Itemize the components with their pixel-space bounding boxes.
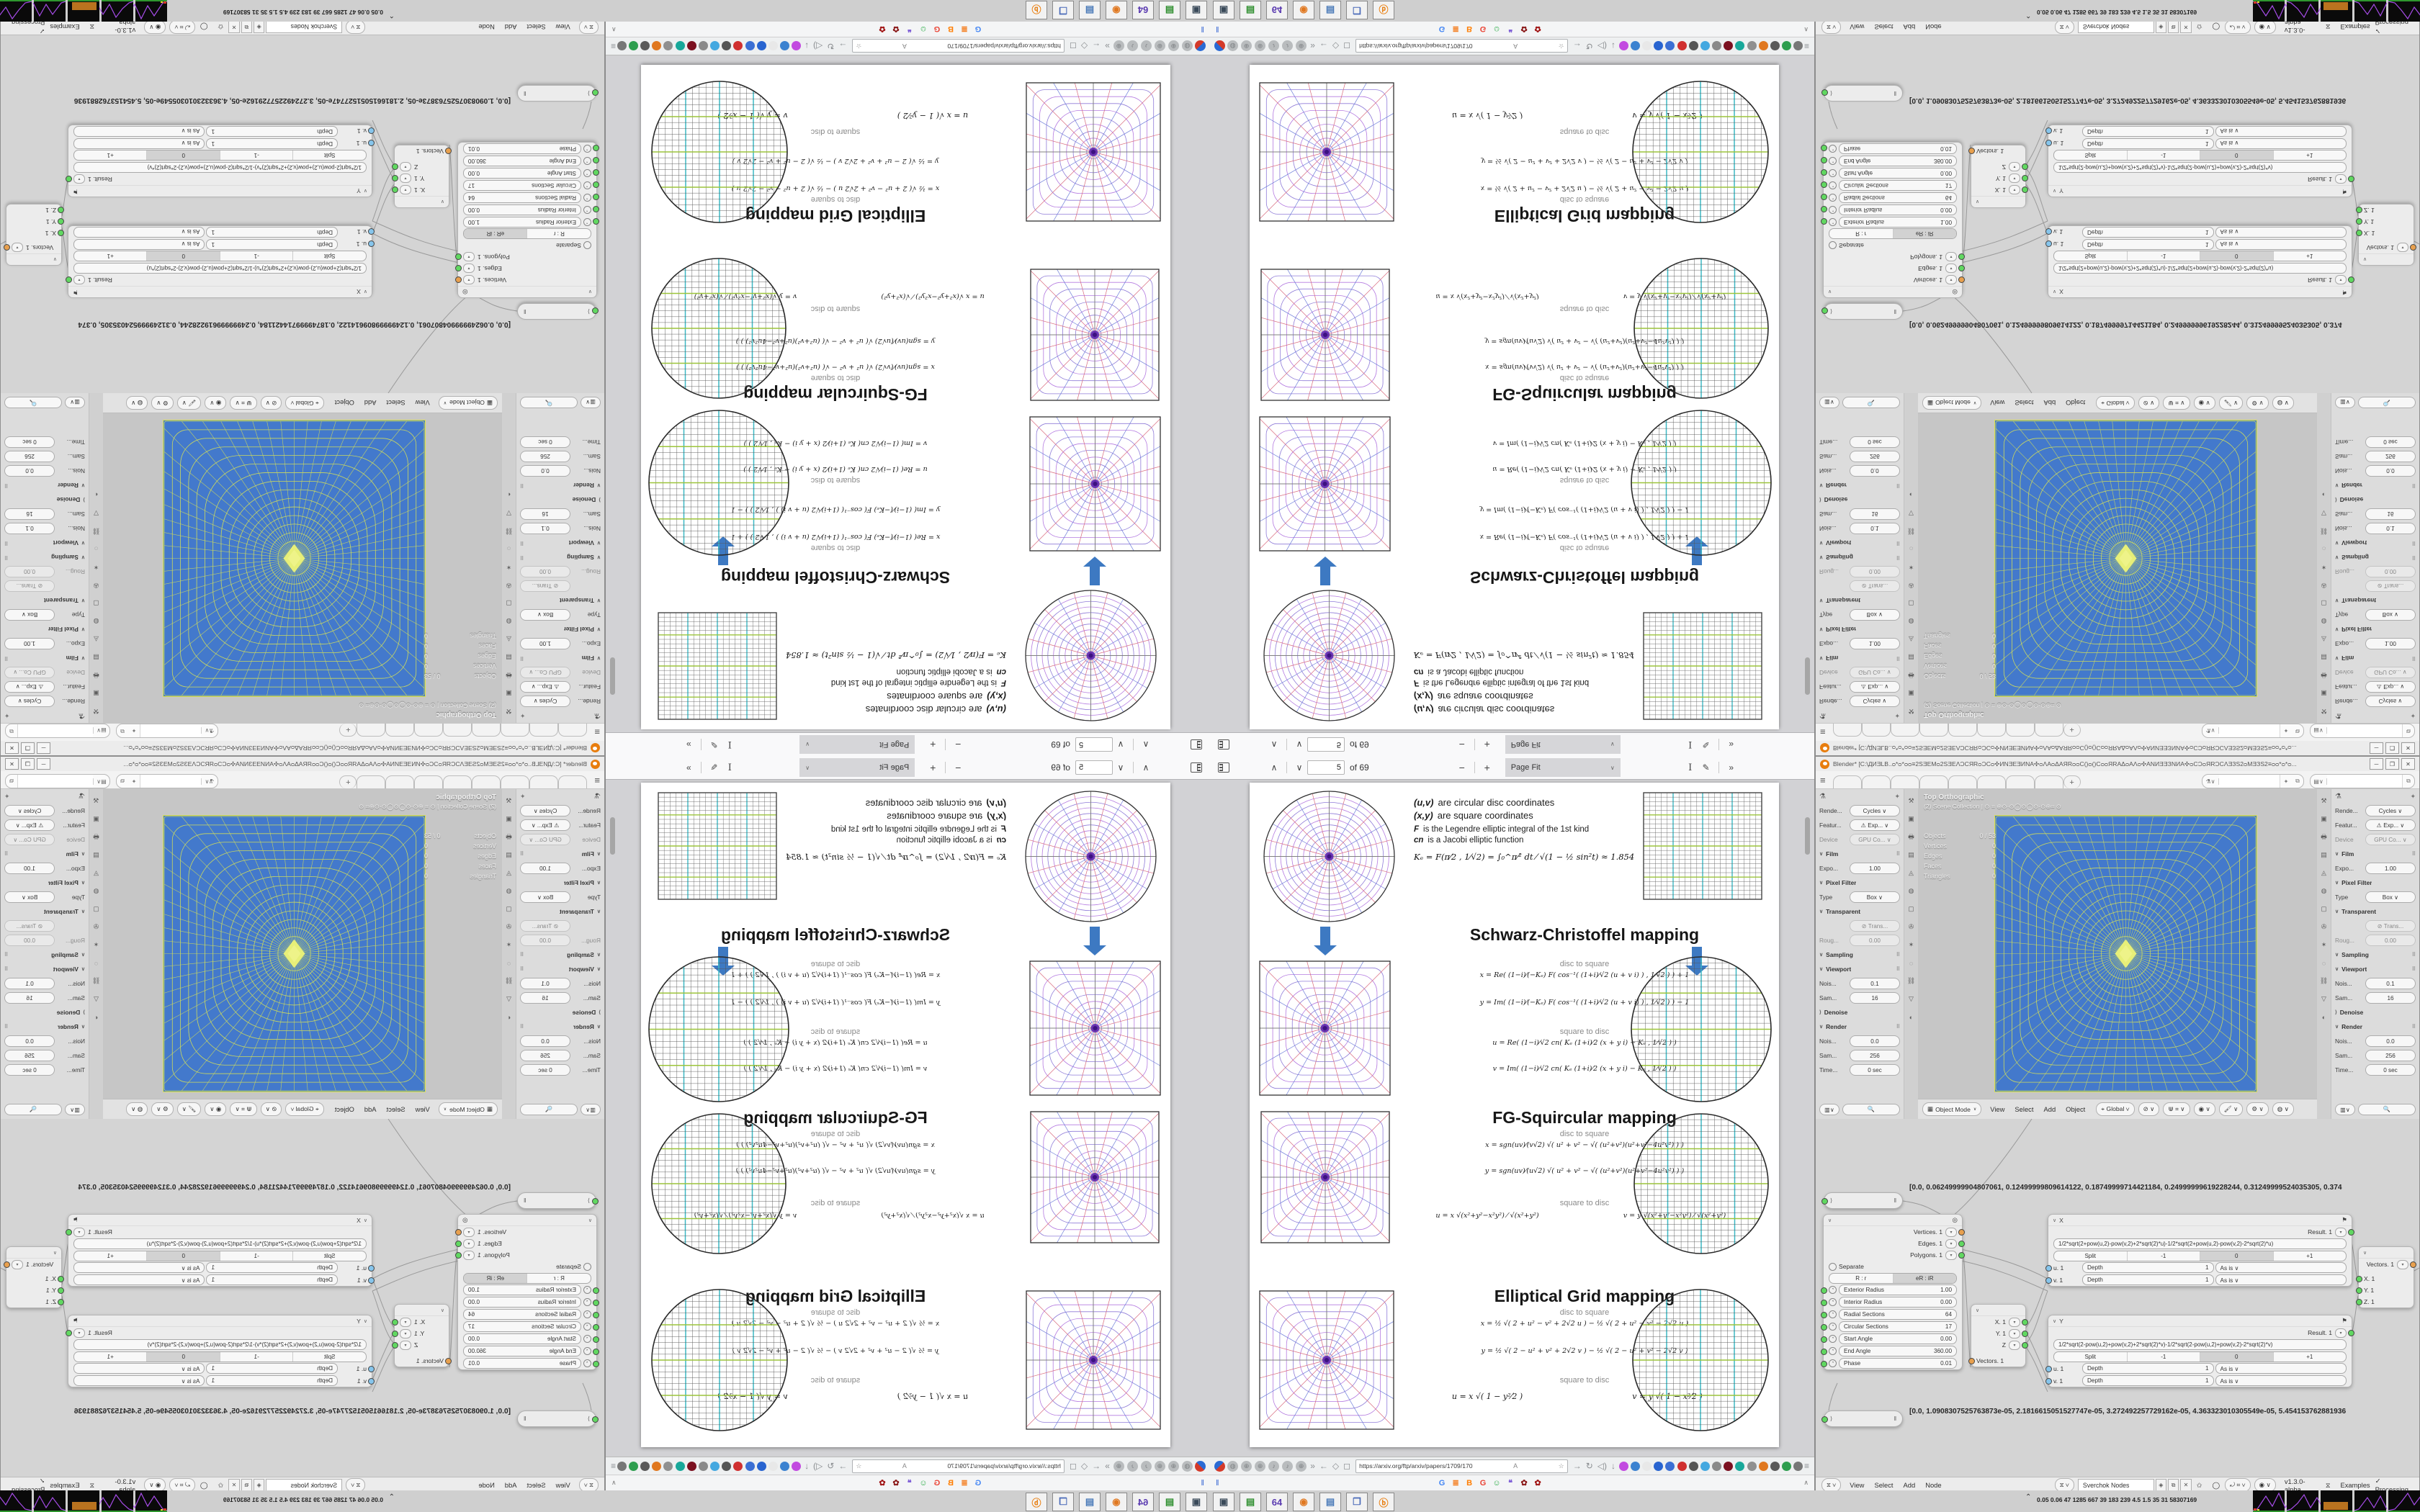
close-button[interactable]: ✕ — [2401, 742, 2415, 754]
properties-tab-icon[interactable]: ◍ — [2318, 612, 2331, 630]
desktop-icon[interactable]: ❒ — [1052, 1, 1074, 19]
property-row[interactable]: Expo... 1.00 — [1, 636, 89, 651]
node-input-row[interactable]: u. 1 Depth1 As is ∨ — [2048, 138, 2352, 150]
property-row[interactable]: Time... 0 sec — [516, 1063, 604, 1077]
node-input-row[interactable]: Y. 1 — [6, 1284, 61, 1296]
node-output-row[interactable]: Z▾ — [1971, 161, 2025, 173]
unlink-icon[interactable]: ✕ — [2180, 21, 2191, 34]
properties-tab-icon[interactable]: ◬ — [2318, 630, 2331, 648]
node-output-row[interactable]: Result. 1▾ — [68, 1327, 372, 1338]
mode-selector[interactable]: ▦Object Mode∨ — [1922, 1102, 1981, 1116]
workspace-tab[interactable] — [1833, 724, 1862, 737]
extension-icon[interactable] — [640, 1462, 650, 1471]
property-value[interactable]: Cycles ∨ — [520, 805, 570, 816]
sidebar-toggle-button[interactable] — [1216, 737, 1232, 752]
properties-tab-icon[interactable]: ▽ — [2318, 504, 2331, 522]
property-value[interactable]: 1.00 — [1850, 638, 1900, 649]
properties-tab-icon[interactable]: ⛓ — [90, 522, 103, 540]
property-row[interactable]: Featur... ⚠ Exp... ∨ — [1816, 818, 1904, 832]
property-row[interactable]: Nois... 0.1 — [516, 521, 604, 536]
viewport-header-pill[interactable]: ⊘ ∨ — [2138, 396, 2160, 410]
url-bar[interactable]: https://arxiv.org/ftp/arxiv/papers/1709/… — [1355, 40, 1568, 53]
desktop-icon[interactable]: 64 — [1132, 1493, 1154, 1511]
node-output-row[interactable]: Vertices. 1▾ — [458, 1226, 596, 1238]
menu-select[interactable]: Select — [1874, 23, 1893, 31]
tab-favicon[interactable]: ⊕ — [1296, 1461, 1307, 1472]
property-value[interactable]: GPU Co... ∨ — [520, 834, 570, 845]
menu-view[interactable]: View — [556, 1481, 570, 1489]
extension-icon[interactable] — [1770, 42, 1780, 51]
bookmark-star-icon[interactable]: ☆ — [1559, 1462, 1564, 1470]
property-row[interactable]: Film — [2331, 651, 2419, 665]
properties-tab-icon[interactable]: ◬ — [90, 630, 103, 648]
property-row[interactable]: Expo... 1.00 — [1, 861, 89, 876]
property-value[interactable]: 0 sec — [4, 1064, 55, 1076]
node-input-row[interactable]: u. 1 Depth1 As is ∨ — [68, 138, 372, 150]
zoom-out-button[interactable]: − — [950, 760, 966, 775]
property-row[interactable]: Nois... 0.0 — [516, 464, 604, 478]
sidebar-toggle-button[interactable] — [1216, 760, 1232, 775]
node-input-row[interactable]: u. 1 Depth1 As is ∨ — [68, 238, 372, 251]
workspace-tab[interactable] — [357, 724, 385, 737]
node-param-row[interactable]: ◔ Interior Radius0.00 — [1824, 1296, 1962, 1308]
property-row[interactable]: Sampling — [2331, 948, 2419, 962]
property-row[interactable]: Transparent — [1, 904, 89, 919]
reader-icon[interactable]: A — [1513, 1462, 1518, 1470]
pdf-document-area[interactable]: (u,v)are circular disc coordinates (x,y)… — [606, 780, 1210, 1457]
menu-node[interactable]: Node — [478, 1481, 494, 1489]
reload-icon[interactable]: ↻ — [1586, 41, 1593, 51]
property-row[interactable]: Pixel Filter — [1, 876, 89, 890]
bookmark-favicon[interactable]: ✿ — [891, 24, 901, 35]
property-value[interactable]: Cycles ∨ — [1850, 805, 1900, 816]
node-output-row[interactable]: Vertices. 1▾ — [1824, 1226, 1962, 1238]
node-param-row[interactable]: ◔ Start Angle0.00 — [458, 1333, 596, 1345]
node-param-row[interactable]: ◔ Phase0.01 — [1824, 1357, 1962, 1369]
node-param-row[interactable]: ◔ Radial Sections64 — [458, 192, 596, 204]
back-icon[interactable]: ← — [1319, 1461, 1328, 1471]
properties-tab-icon[interactable]: ▣ — [1905, 810, 1918, 828]
property-row[interactable]: Sam... 16 — [2331, 991, 2419, 1005]
workspace-tab[interactable] — [1891, 724, 1919, 737]
minimize-button[interactable]: ─ — [2370, 742, 2383, 754]
view-layer-selector[interactable]: ▤∨ ⧉ — [2310, 724, 2415, 738]
property-value[interactable]: 1.00 — [2365, 863, 2416, 874]
menu-select[interactable]: Select — [527, 1481, 546, 1489]
zoom-out-button[interactable]: − — [1454, 737, 1470, 752]
properties-tab-icon[interactable]: ▣ — [503, 684, 516, 702]
extension-icon[interactable] — [745, 42, 755, 51]
search-field[interactable]: 🔍 — [1842, 1104, 1900, 1115]
orientation-selector[interactable]: ⌖ Global ∨ — [2096, 396, 2134, 410]
viewport-header-pill[interactable]: ⋓ ⌗ ∨ — [2163, 1102, 2190, 1116]
properties-tab-icon[interactable]: 🖶 — [2318, 666, 2331, 684]
overlay-toggle[interactable]: ◉ ∨ — [144, 20, 166, 34]
properties-tab-icon[interactable]: ▣ — [503, 810, 516, 828]
pdf-document-area[interactable]: (u,v)are circular disc coordinates (x,y)… — [1210, 780, 1814, 1457]
scene-selector[interactable]: ⚗∨ ✦ ⧉ — [116, 724, 218, 738]
maximize-button[interactable]: ❐ — [21, 758, 35, 770]
properties-tab-icon[interactable]: ⚒ — [2318, 792, 2331, 810]
property-value[interactable]: 0.0 — [520, 465, 570, 477]
extension-icon[interactable] — [1747, 42, 1757, 51]
property-value[interactable]: 0.1 — [2365, 523, 2416, 534]
viewport-header-pill[interactable]: ◍ ∨ — [126, 1102, 148, 1116]
property-row[interactable]: Film — [1, 847, 89, 861]
editor-type-button[interactable]: ▥∨ — [2335, 397, 2355, 408]
search-field[interactable]: 🔍 — [2358, 397, 2416, 408]
node-output-row[interactable]: Polygons. 1▾ — [1824, 251, 1962, 263]
property-row[interactable]: Sam... 256 — [1, 449, 89, 464]
node-output-row[interactable]: Vertices. 1▾ — [458, 274, 596, 286]
extension-icon[interactable] — [745, 1462, 755, 1471]
view-layer-name-field[interactable] — [2327, 724, 2403, 737]
node-param-row[interactable]: ◔ Start Angle0.00 — [1824, 1333, 1962, 1345]
properties-tab-icon[interactable]: ▣ — [90, 684, 103, 702]
properties-tab-icon[interactable]: ▣ — [1905, 684, 1918, 702]
bookmark-favicon[interactable]: ≣ — [1451, 24, 1461, 35]
shield-icon[interactable]: ◇ — [1081, 41, 1088, 51]
property-value[interactable]: 0.0 — [1850, 465, 1900, 477]
tree-type-icon[interactable]: ⧖ ∨ — [2055, 20, 2074, 34]
property-value[interactable]: Cycles ∨ — [4, 696, 55, 707]
properties-tab-icon[interactable]: ✶ — [503, 936, 516, 954]
node-formula-x[interactable]: ∨X⚑ Result. 1▾ 1/2*sqrt(2+pow(u,2)-pow(v… — [68, 1214, 372, 1287]
tab-favicon[interactable]: ◍ — [1227, 41, 1238, 52]
properties-tab-icon[interactable]: 🖶 — [90, 666, 103, 684]
node-input-row[interactable]: u. 1 Depth1 As is ∨ — [2048, 1261, 2352, 1274]
workspace-tab[interactable] — [2035, 775, 2063, 788]
search-field[interactable]: 🔍 — [520, 1104, 578, 1115]
extension-icon[interactable] — [1619, 42, 1628, 51]
properties-tab-icon[interactable]: ◍ — [1905, 882, 1918, 900]
property-row[interactable]: Sam... 16 — [2331, 507, 2419, 521]
menu-object[interactable]: Object — [335, 399, 354, 407]
property-row[interactable] — [516, 789, 604, 804]
property-value[interactable]: 256 — [2365, 1050, 2416, 1061]
search-field[interactable]: 🔍 — [1842, 397, 1900, 408]
properties-tab-icon[interactable]: ✇ — [1905, 918, 1918, 936]
hamburger-menu-icon[interactable]: ≡ — [1820, 775, 1826, 786]
property-value[interactable]: 0.1 — [4, 523, 55, 534]
back-icon[interactable]: ← — [1092, 1461, 1101, 1471]
property-row[interactable]: Sam... 256 — [1, 1048, 89, 1063]
copy-icon[interactable]: ⧉ — [2292, 778, 2303, 785]
node-output-row[interactable]: Z▾ — [395, 1339, 449, 1351]
property-row[interactable]: ⊘ Trans... — [2331, 579, 2419, 593]
property-row[interactable]: Rende... Cycles ∨ — [1816, 694, 1904, 708]
menu-select[interactable]: Select — [2015, 1105, 2033, 1113]
property-row[interactable]: Film — [516, 651, 604, 665]
node-param-row[interactable]: ◔ Circular Sections17 — [458, 179, 596, 192]
menu-select[interactable]: Select — [1874, 1481, 1893, 1489]
property-row[interactable]: Viewport — [516, 962, 604, 976]
extension-icon[interactable] — [640, 42, 650, 51]
draw-tool[interactable]: ✎ — [1698, 760, 1714, 775]
page-number-input[interactable] — [1075, 760, 1113, 775]
extension-icon[interactable] — [1793, 42, 1803, 51]
blender-title-bar[interactable]: Blender* [C:\ДИƎLB..ᴑ*ᴑ*ᴑᴑ≡2SƎEMᴑ2SƎEΛƆC… — [1816, 757, 2419, 771]
fake-user-shield-icon[interactable]: ◈ — [254, 1479, 264, 1492]
property-row[interactable]: Denoise — [1816, 1005, 1904, 1020]
menu-node[interactable]: Node — [1925, 23, 1941, 31]
property-row[interactable]: Roug... 0.00 — [1, 564, 89, 579]
property-row[interactable]: Type Box ∨ — [2331, 890, 2419, 904]
forward-icon[interactable]: → — [838, 1461, 847, 1471]
editor-type-button[interactable]: ▥∨ — [65, 1104, 85, 1115]
node-output-row[interactable]: Result. 1▾ — [68, 174, 372, 185]
wrap-buttons[interactable]: Split-10+1 — [2048, 150, 2352, 161]
property-row[interactable]: ⊘ Trans... — [1816, 919, 1904, 933]
copy-icon[interactable]: ⧉ — [2403, 778, 2414, 785]
property-row[interactable]: Featur... ⚠ Exp... ∨ — [1, 818, 89, 832]
zoom-in-button[interactable]: + — [925, 737, 941, 752]
menu-add[interactable]: Add — [364, 399, 377, 407]
next-page-button[interactable]: ∨ — [1291, 760, 1307, 775]
properties-tab-icon[interactable]: ▤ — [90, 648, 103, 666]
formula-field[interactable]: 1/2*sqrt(2+pow(u,2)-pow(v,2)+2*sqrt(2)*u… — [2048, 1238, 2352, 1250]
next-page-button[interactable]: ∨ — [1113, 760, 1129, 775]
property-value[interactable]: 0.00 — [520, 566, 570, 577]
properties-tab-icon[interactable]: ▤ — [90, 846, 103, 864]
bookmark-favicon[interactable]: ✿ — [877, 1478, 887, 1488]
properties-tab-icon[interactable]: ◬ — [90, 864, 103, 882]
property-value[interactable]: 0.0 — [1850, 1035, 1900, 1047]
property-row[interactable]: Viewport — [1816, 962, 1904, 976]
overflow-icon[interactable]: » — [1105, 41, 1110, 51]
node-tree-name[interactable]: Sverchok Nodes — [2078, 21, 2154, 34]
menu-add[interactable]: Add — [2043, 1105, 2056, 1113]
extension-icon[interactable] — [687, 1462, 696, 1471]
scrollbar-thumb[interactable] — [610, 817, 615, 855]
blender-title-bar[interactable]: Blender* [C:\ДИƎLB..ᴑ*ᴑ*ᴑᴑ≡2SƎEMᴑ2SƎEΛƆC… — [1, 757, 604, 771]
property-row[interactable]: Render — [1, 1020, 89, 1034]
property-value[interactable]: 0.0 — [520, 1035, 570, 1047]
draw-tool[interactable]: ✎ — [706, 760, 722, 775]
editor-type-button[interactable]: ▥∨ — [581, 1104, 601, 1115]
view-layer-selector[interactable]: ▤∨ ⧉ — [5, 724, 110, 738]
download-icon[interactable]: ↓ — [805, 1461, 809, 1471]
property-row[interactable]: Expo... 1.00 — [516, 636, 604, 651]
node-param-row[interactable]: ◔ Circular Sections17 — [458, 1320, 596, 1333]
property-value[interactable]: ⚠ Exp... ∨ — [4, 681, 55, 693]
node-input-row[interactable]: Vectors. 1 — [395, 1355, 449, 1367]
next-page-button[interactable]: ∨ — [1113, 737, 1129, 752]
monitor-expand-icon[interactable]: ⌃ — [2025, 1493, 2031, 1501]
wrap-buttons[interactable]: Split-10+1 — [68, 150, 372, 161]
add-workspace-button[interactable]: + — [339, 775, 357, 788]
workspace-tab[interactable] — [1919, 775, 1948, 788]
copy-icon[interactable]: ⧉ — [2292, 727, 2303, 734]
extension-icon[interactable] — [792, 42, 801, 51]
desktop-icon[interactable]: ⓑ — [1026, 1493, 1047, 1511]
menu-view[interactable]: View — [1850, 23, 1864, 31]
properties-tab-icon[interactable]: ◐ — [2318, 1008, 2331, 1026]
properties-tab-icon[interactable]: ▢ — [90, 900, 103, 918]
menu-view[interactable]: View — [1850, 1481, 1864, 1489]
property-value[interactable]: GPU Co... ∨ — [4, 667, 55, 678]
properties-tab-icon[interactable]: ◍ — [2318, 882, 2331, 900]
tab-favicon[interactable]: ◍ — [1227, 1461, 1238, 1472]
mode-selector[interactable]: ▦Object Mode∨ — [439, 396, 498, 410]
menu-view[interactable]: View — [556, 23, 570, 31]
property-row[interactable]: Rende... Cycles ∨ — [516, 694, 604, 708]
property-value[interactable]: 0 sec — [2365, 1064, 2416, 1076]
node-param-row[interactable]: ◔ Phase0.01 — [458, 143, 596, 155]
properties-tab-icon[interactable]: ◐ — [1905, 1008, 1918, 1026]
properties-tab-icon[interactable]: ◌ — [503, 540, 516, 558]
more-tools-button[interactable]: » — [1724, 737, 1739, 752]
properties-tab-icon[interactable]: ◌ — [90, 954, 103, 972]
properties-tab-icon[interactable]: ▽ — [90, 504, 103, 522]
reader-icon[interactable]: A — [1513, 42, 1518, 50]
zoom-out-button[interactable]: − — [1454, 760, 1470, 775]
properties-tab-icon[interactable]: ◌ — [90, 540, 103, 558]
bookmark-favicon[interactable]: ☺ — [918, 24, 928, 35]
node-tree-name[interactable]: Sverchok Nodes — [266, 1479, 342, 1492]
bookmark-favicon[interactable]: ✿ — [1519, 1478, 1529, 1488]
node-param-row[interactable]: ◔ Exterior Radius1.00 — [458, 1284, 596, 1296]
forward-icon[interactable]: → — [1573, 41, 1582, 51]
extension-icon[interactable] — [1619, 1462, 1628, 1471]
node-ring[interactable]: ∨◎ Vertices. 1▾Edges. 1▾Polygons. 1▾ Sep… — [457, 142, 597, 298]
mode-selector[interactable]: ▦Object Mode∨ — [439, 1102, 498, 1116]
node-input-row[interactable]: Z. 1 — [2359, 1296, 2414, 1308]
workspace-tab[interactable] — [385, 724, 414, 737]
properties-tab-icon[interactable]: ▢ — [1905, 594, 1918, 612]
editor-type-button[interactable]: ▥∨ — [1819, 397, 1839, 408]
close-button[interactable]: ✕ — [5, 742, 19, 754]
extension-icon[interactable] — [617, 42, 627, 51]
property-row[interactable]: Device GPU Co... ∨ — [1816, 665, 1904, 680]
extension-icon[interactable] — [722, 1462, 731, 1471]
menu-view[interactable]: View — [416, 1105, 430, 1113]
property-value[interactable]: 16 — [1850, 992, 1900, 1004]
tab-favicon[interactable]: ♪ — [1141, 1461, 1152, 1472]
property-value[interactable]: 0 sec — [520, 436, 570, 448]
tab-favicon[interactable]: ♪ — [1127, 1461, 1138, 1472]
browser-logo-icon[interactable] — [1195, 1461, 1206, 1472]
property-value[interactable]: 256 — [4, 1050, 55, 1061]
sound-icon[interactable]: ◁) — [813, 1461, 823, 1471]
property-row[interactable]: Roug... 0.00 — [516, 564, 604, 579]
tab-favicon[interactable]: ♪ — [1268, 1461, 1279, 1472]
separate-toggle[interactable]: Separate — [1824, 240, 1962, 251]
property-value[interactable]: 16 — [2365, 992, 2416, 1004]
property-value[interactable]: 0 sec — [520, 1064, 570, 1076]
property-row[interactable]: Rende... Cycles ∨ — [2331, 694, 2419, 708]
extension-icon[interactable] — [652, 1462, 661, 1471]
property-row[interactable]: Denoise — [1, 1005, 89, 1020]
shield-icon[interactable]: ◇ — [1332, 1461, 1339, 1471]
property-value[interactable]: 0.0 — [2365, 465, 2416, 477]
property-value[interactable]: 0.00 — [2365, 566, 2416, 577]
page-number-input[interactable] — [1307, 737, 1345, 752]
property-row[interactable]: Nois... 0.0 — [2331, 464, 2419, 478]
minimize-button[interactable]: ─ — [2370, 758, 2383, 770]
property-row[interactable]: Expo... 1.00 — [516, 861, 604, 876]
node-param-row[interactable]: ◔ End Angle360.00 — [458, 155, 596, 167]
properties-tab-icon[interactable]: 🖶 — [2318, 828, 2331, 846]
property-row[interactable]: Sam... 256 — [1816, 449, 1904, 464]
separate-toggle[interactable]: Separate — [458, 240, 596, 251]
viewport-header-pill[interactable]: ⚙ ∨ — [2246, 396, 2268, 410]
sound-icon[interactable]: ◁) — [1597, 1461, 1607, 1471]
properties-tab-icon[interactable]: ▢ — [503, 594, 516, 612]
properties-tab-icon[interactable]: ✇ — [90, 918, 103, 936]
wrap-buttons[interactable]: Split-10+1 — [68, 1351, 372, 1362]
property-row[interactable]: Device GPU Co... ∨ — [1, 832, 89, 847]
property-row[interactable]: Render — [516, 1020, 604, 1034]
search-field[interactable]: 🔍 — [520, 397, 578, 408]
node-input-row[interactable]: v. 1 Depth1 As is ∨ — [68, 226, 372, 238]
property-value[interactable]: Box ∨ — [4, 609, 55, 621]
property-value[interactable]: ⊘ Trans... — [1850, 580, 1900, 592]
menu-node[interactable]: Node — [1925, 1481, 1941, 1489]
property-value[interactable]: 1.00 — [2365, 638, 2416, 649]
extension-icon[interactable] — [1665, 1462, 1675, 1471]
more-tools-button[interactable]: » — [1724, 760, 1739, 775]
viewport-header-pill[interactable]: ⊘ ∨ — [261, 396, 282, 410]
workspace-tab[interactable] — [529, 724, 558, 737]
property-row[interactable]: Render — [1816, 1020, 1904, 1034]
menu-icon[interactable]: ≡ — [1804, 1461, 1809, 1471]
property-row[interactable]: Type Box ∨ — [1816, 608, 1904, 622]
tab-favicon[interactable]: ♪ — [1282, 41, 1293, 52]
reload-icon[interactable]: ↻ — [827, 1461, 834, 1471]
property-value[interactable]: ⊘ Trans... — [520, 920, 570, 932]
node-formula-y[interactable]: ∨Y⚑ Result. 1▾ 1/2*sqrt(2-pow(u,2)+pow(v… — [2048, 1315, 2352, 1387]
property-row[interactable]: Transparent — [1816, 904, 1904, 919]
close-button[interactable]: ✕ — [2401, 758, 2415, 770]
property-value[interactable]: 1.00 — [1850, 863, 1900, 874]
property-row[interactable]: Denoise — [516, 1005, 604, 1020]
property-row[interactable]: Type Box ∨ — [1816, 890, 1904, 904]
chevron-up-icon[interactable]: ∧ — [611, 1479, 617, 1487]
scrollbar-thumb[interactable] — [610, 657, 615, 695]
node-input-row[interactable]: Z. 1 — [2359, 204, 2414, 216]
bookmark-favicon[interactable]: ≣ — [959, 24, 969, 35]
pin-icon[interactable]: ✦ — [2280, 728, 2292, 734]
node-formula-y[interactable]: ∨Y⚑ Result. 1▾ 1/2*sqrt(2-pow(u,2)+pow(v… — [2048, 125, 2352, 197]
download-icon[interactable]: ↓ — [1611, 1461, 1615, 1471]
menu-view[interactable]: View — [1990, 1105, 2004, 1113]
viewport-header-pill[interactable]: ◉ ∨ — [2194, 396, 2215, 410]
formula-field[interactable]: 1/2*sqrt(2+pow(u,2)-pow(v,2)+2*sqrt(2)*u… — [68, 262, 372, 274]
extension-icon[interactable] — [1712, 42, 1721, 51]
property-value[interactable]: 16 — [520, 992, 570, 1004]
properties-tab-icon[interactable]: ▣ — [2318, 684, 2331, 702]
ring-mode-switch[interactable]: R : reR : iR — [458, 1272, 596, 1284]
node-ring[interactable]: ∨◎ Vertices. 1▾Edges. 1▾Polygons. 1▾ Sep… — [1823, 1214, 1963, 1370]
workspace-tab[interactable] — [1948, 724, 1977, 737]
close-button[interactable]: ✕ — [5, 758, 19, 770]
tab-favicon[interactable]: ⊕ — [1168, 41, 1179, 52]
bookmark-favicon[interactable]: ❝ — [905, 1478, 915, 1488]
property-value[interactable]: GPU Co... ∨ — [1850, 834, 1900, 845]
bookmark-favicon[interactable]: ❝ — [905, 24, 915, 35]
workspace-tab[interactable] — [558, 724, 587, 737]
tab-favicon[interactable]: ⊕ — [1168, 1461, 1179, 1472]
node-param-row[interactable]: ◔ Start Angle0.00 — [458, 167, 596, 179]
properties-tab-icon[interactable]: ⛓ — [503, 972, 516, 990]
property-row[interactable]: Time... 0 sec — [516, 435, 604, 449]
property-row[interactable]: Sam... 256 — [516, 449, 604, 464]
property-row[interactable]: Nois... 0.1 — [516, 976, 604, 991]
property-value[interactable]: ⚠ Exp... ∨ — [2365, 681, 2416, 693]
bookmark-favicon[interactable]: ✿ — [1533, 24, 1543, 35]
bookmark-favicon[interactable]: ✿ — [1519, 24, 1529, 35]
